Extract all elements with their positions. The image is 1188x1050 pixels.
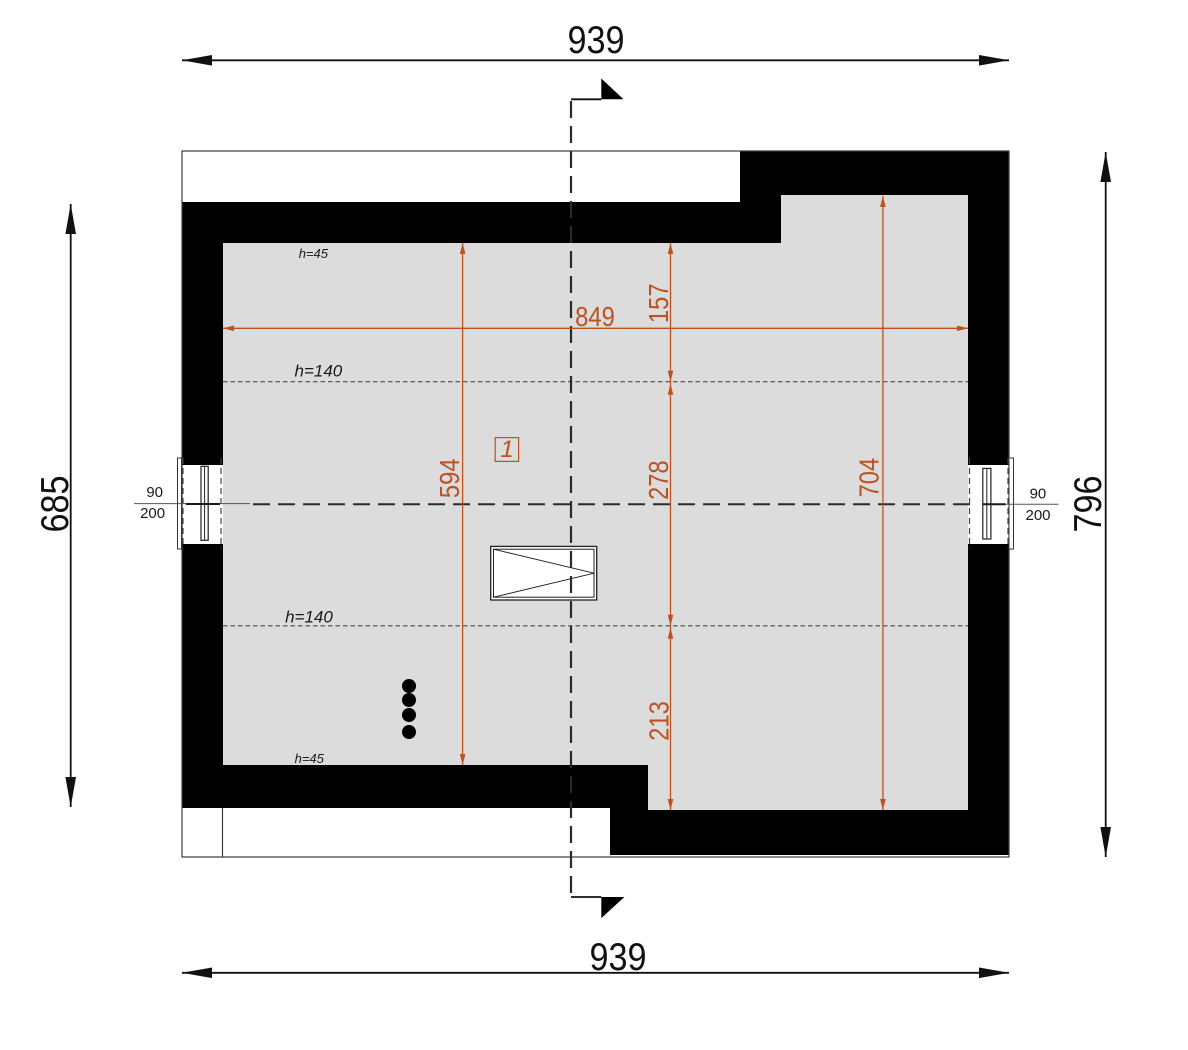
svg-text:h=140: h=140 bbox=[285, 608, 333, 627]
svg-text:849: 849 bbox=[575, 300, 615, 332]
svg-text:h=45: h=45 bbox=[299, 246, 329, 261]
svg-text:213: 213 bbox=[643, 701, 675, 741]
svg-text:278: 278 bbox=[642, 460, 674, 500]
svg-text:939: 939 bbox=[589, 935, 646, 979]
svg-text:1: 1 bbox=[500, 436, 513, 463]
svg-text:90: 90 bbox=[146, 484, 163, 501]
svg-text:685: 685 bbox=[33, 475, 77, 532]
svg-text:157: 157 bbox=[642, 283, 674, 323]
svg-text:h=45: h=45 bbox=[295, 751, 325, 766]
svg-text:90: 90 bbox=[1030, 486, 1047, 503]
svg-text:h=140: h=140 bbox=[295, 361, 343, 380]
svg-text:796: 796 bbox=[1066, 475, 1110, 532]
svg-text:704: 704 bbox=[853, 458, 885, 498]
svg-text:939: 939 bbox=[567, 18, 624, 62]
svg-text:200: 200 bbox=[140, 505, 165, 522]
svg-text:200: 200 bbox=[1026, 507, 1051, 524]
svg-text:594: 594 bbox=[433, 458, 465, 498]
